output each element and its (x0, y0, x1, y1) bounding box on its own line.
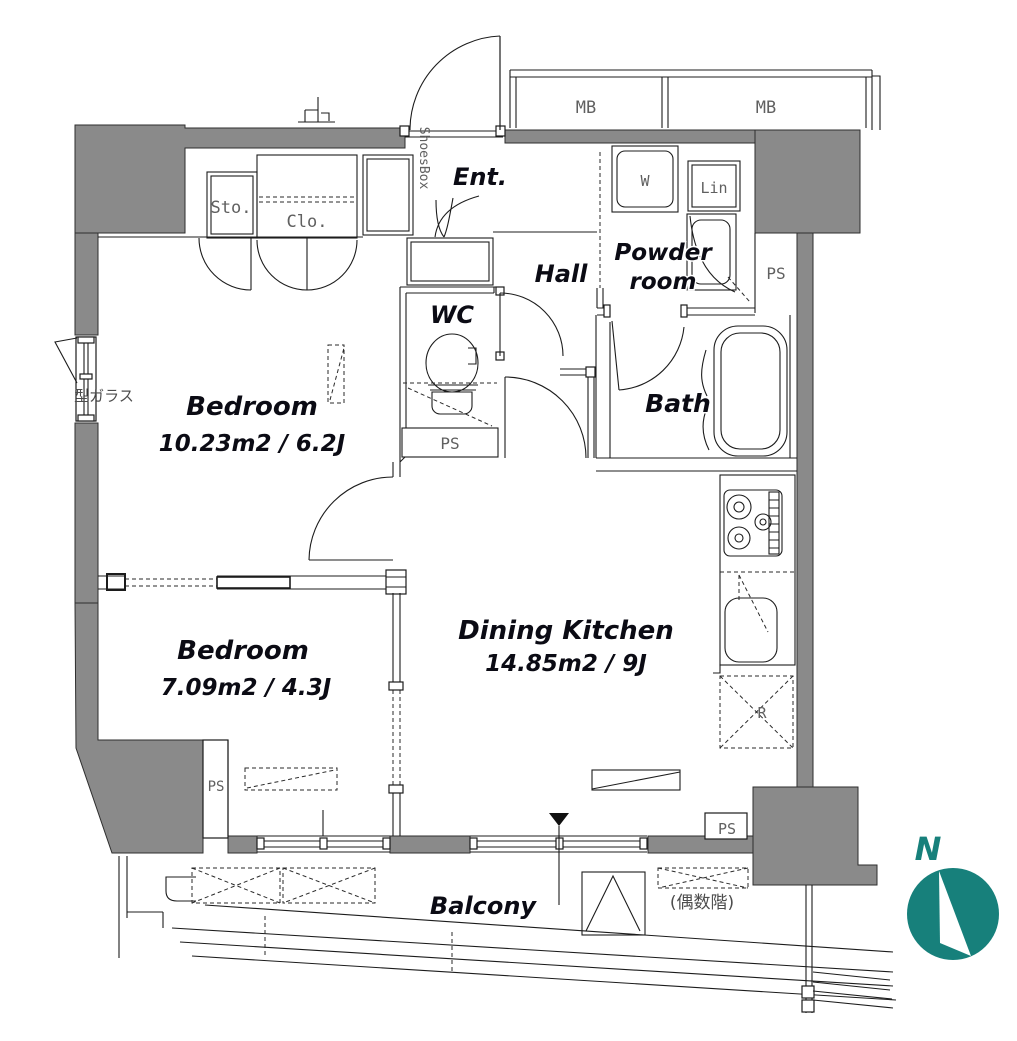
frosted-glass-label: 型ガラス (74, 387, 134, 405)
refrigerator-label: R (757, 704, 767, 722)
wall-right-column (797, 233, 813, 787)
stove-fixture (724, 490, 782, 556)
toilet-fixture (403, 334, 497, 426)
wc-pipe-space-label: PS (440, 434, 459, 453)
bedroom-main-label: Bedroom (186, 392, 318, 422)
wall-left-upper (75, 233, 98, 335)
wall-bottom-segment-1 (228, 836, 257, 853)
dining-kitchen-area: 14.85m2 / 9J (485, 651, 647, 677)
wc-room (400, 287, 563, 457)
bedroom-second-area: 7.09m2 / 4.3J (161, 675, 332, 701)
ac-unit-spaces (192, 868, 375, 903)
bedroom-second-window (257, 810, 390, 852)
bedroom-second-label: Bedroom (177, 636, 309, 666)
powder-room-label-line1: Powder (614, 240, 713, 266)
powder-room-label-line2: room (630, 269, 697, 295)
even-floor-ac-space (658, 868, 748, 888)
storage-label: Sto. (211, 198, 252, 218)
hall-partitions (505, 152, 603, 458)
bedroom-divider-wall (98, 570, 406, 594)
bathtub-fixture (702, 326, 787, 456)
bedroom-second-partition (389, 593, 403, 836)
sink-fixture (725, 598, 777, 662)
meter-box-1-label: MB (576, 98, 596, 118)
dining-kitchen-label: Dining Kitchen (458, 616, 674, 646)
balcony-label: Balcony (430, 892, 538, 920)
floorplan-page: MB MB Sto. Clo. ShoesBox (0, 0, 1017, 1041)
north-compass: N (907, 830, 999, 960)
meter-box-2-label: MB (756, 98, 776, 118)
powder-pipe-space-label: PS (766, 264, 785, 283)
shoes-box-label: ShoesBox (416, 127, 431, 190)
entrance-door-swing-arc (410, 36, 500, 130)
wall-bottom-right-block (753, 787, 877, 885)
wall-bottom-segment-2 (390, 836, 470, 853)
bath-label: Bath (645, 389, 711, 418)
section-marker (549, 813, 569, 905)
closet-label: Clo. (287, 212, 328, 232)
wall-top-right-band (505, 130, 755, 143)
bedroom-main-door-swing-arc (309, 477, 393, 560)
pipe-symbol (298, 97, 335, 122)
evacuation-hatch (582, 872, 645, 935)
entrance-door (400, 36, 505, 137)
hall-door-swing-arc (505, 377, 586, 458)
bedroom-second-desk (245, 768, 337, 790)
meter-box-row (510, 70, 880, 130)
entrance-label: Ent. (453, 163, 507, 191)
bath-door-swing-arc (619, 327, 684, 390)
hall-label: Hall (535, 260, 589, 288)
north-label: N (915, 830, 942, 868)
wc-label: WC (430, 301, 474, 329)
bedroom-main-area: 10.23m2 / 6.2J (159, 431, 346, 457)
wall-top-right-block (755, 130, 860, 233)
wall-left-lower (75, 423, 98, 603)
kitchen-shelf (592, 770, 680, 790)
frosted-glass-window (55, 337, 96, 421)
washer-label: W (640, 172, 650, 190)
floorplan-drawing: MB MB Sto. Clo. ShoesBox (0, 0, 1017, 1041)
wc-door-swing-arc (500, 293, 563, 356)
storage-closet (199, 155, 357, 290)
bedroom-pipe-space-label: PS (208, 779, 225, 795)
linen-label: Lin (700, 179, 727, 197)
structural-walls (75, 125, 877, 885)
kitchen-pipe-space-label: PS (718, 820, 736, 838)
even-floor-note-label: (偶数階) (670, 893, 734, 913)
